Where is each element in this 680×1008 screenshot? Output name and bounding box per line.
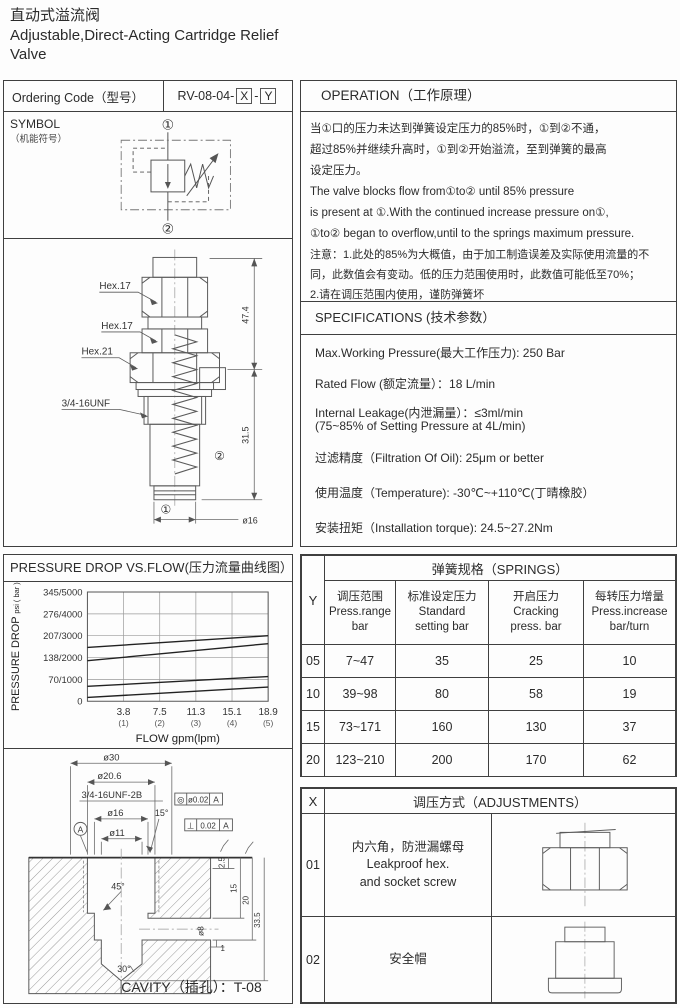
cell-cracking: 130 bbox=[489, 711, 584, 744]
cell-standard: 160 bbox=[396, 711, 489, 744]
valve-dimension-arrows bbox=[154, 258, 257, 522]
col-header-line: 调压范围 bbox=[325, 590, 395, 605]
svg-text:0: 0 bbox=[77, 696, 82, 707]
cavity-tolerance-frames: ◎ ø0.02 A ⊥ 0.02 A bbox=[175, 793, 233, 831]
pressure-flow-chart: 070/1000138/2000207/3000276/4000345/5000… bbox=[3, 581, 293, 749]
adjustments-table: X 调压方式（ADJUSTMENTS） 01 内六角，防泄漏螺母 Leakpro… bbox=[301, 788, 676, 1003]
symbol-label-zh: （机能符号） bbox=[10, 132, 67, 147]
svg-text:15.1: 15.1 bbox=[222, 707, 242, 718]
cell-standard: 80 bbox=[396, 678, 489, 711]
tolerance2-datum: A bbox=[223, 820, 229, 830]
svg-text:(5): (5) bbox=[263, 718, 274, 728]
desc-line: 安全帽 bbox=[325, 951, 491, 969]
svg-text:276/4000: 276/4000 bbox=[43, 608, 82, 619]
svg-text:(2): (2) bbox=[155, 718, 166, 728]
cell-cracking: 58 bbox=[489, 678, 584, 711]
desc-line: and socket screw bbox=[325, 874, 491, 892]
operation-line: 当①口的压力未达到弹簧设定压力的85%时，①到②不通， bbox=[310, 119, 667, 140]
cell-description: 内六角，防泄漏螺母 Leakproof hex. and socket scre… bbox=[325, 814, 492, 917]
ordering-code-label: Ordering Code（型号） bbox=[4, 81, 164, 111]
cell-x: 01 bbox=[302, 814, 325, 917]
cell-increase: 10 bbox=[584, 645, 676, 678]
cell-range: 73~171 bbox=[325, 711, 396, 744]
adjustments-corner-x: X bbox=[302, 789, 325, 814]
cavity-dia8-label: ø8 bbox=[196, 926, 206, 936]
ordering-code-x: X bbox=[236, 88, 252, 104]
cell-drawing bbox=[492, 917, 676, 1003]
valve-port2-label: ② bbox=[214, 449, 225, 463]
svg-text:70/1000: 70/1000 bbox=[48, 674, 82, 685]
springs-col-press-range: 调压范围 Press.range bar bbox=[325, 581, 396, 645]
cell-range: 7~47 bbox=[325, 645, 396, 678]
col-header-line: 标准设定压力 bbox=[396, 590, 488, 605]
tolerance2-symbol: ⊥ bbox=[187, 820, 194, 830]
ordering-code-value: RV-08-04-X-Y bbox=[164, 88, 292, 104]
cavity-dim335-label: 33.5 bbox=[253, 912, 262, 928]
svg-text:345/5000: 345/5000 bbox=[43, 586, 82, 597]
cavity-drawing: ø30 ø20.6 3/4-16UNF-2B ø16 ø11 15° 45° 3… bbox=[4, 749, 292, 1003]
tolerance2-value: 0.02 bbox=[200, 821, 216, 830]
spec-internal-leakage-note: (75~85% of Setting Pressure at 4L/min) bbox=[315, 419, 525, 433]
ordering-code-y: Y bbox=[260, 88, 276, 104]
col-header-line: Press.range bbox=[325, 605, 395, 620]
svg-text:(4): (4) bbox=[227, 718, 238, 728]
cell-y: 20 bbox=[302, 744, 325, 777]
operation-line: ①to② began to overflow,until to the spri… bbox=[310, 224, 667, 245]
operation-title: OPERATION（工作原理） bbox=[321, 88, 481, 103]
cell-standard: 200 bbox=[396, 744, 489, 777]
cell-increase: 37 bbox=[584, 711, 676, 744]
cell-y: 10 bbox=[302, 678, 325, 711]
col-header-line: Cracking bbox=[489, 605, 583, 620]
cavity-caption: CAVITY（插孔）：T-08 bbox=[94, 977, 289, 997]
spec-filtration: 过滤精度（Filtration Of Oil): 25μm or better bbox=[315, 449, 544, 466]
specifications-section-header: SPECIFICATIONS (技术参数） bbox=[300, 301, 677, 335]
col-header-line: Press.increase bbox=[584, 605, 675, 620]
cavity-dia11-label: ø11 bbox=[109, 827, 125, 838]
tolerance1-value: ø0.02 bbox=[188, 796, 209, 805]
springs-table-section: Y 弹簧规格（SPRINGS） 调压范围 Press.range bar 标准设… bbox=[300, 554, 677, 777]
adjustments-table-title: 调压方式（ADJUSTMENTS） bbox=[325, 789, 676, 814]
cell-y: 15 bbox=[302, 711, 325, 744]
thread-label: 3/4-16UNF bbox=[62, 398, 111, 409]
symbol-port2-label: ② bbox=[162, 221, 174, 237]
col-header-line: bar/turn bbox=[584, 620, 675, 635]
cavity-angle45-label: 45° bbox=[111, 881, 125, 891]
operation-section-header: OPERATION（工作原理） bbox=[300, 80, 677, 112]
svg-text:3.8: 3.8 bbox=[117, 707, 131, 718]
springs-row-05: 05 7~47 35 25 10 bbox=[302, 645, 676, 678]
springs-col-standard-setting: 标准设定压力 Standard setting bar bbox=[396, 581, 489, 645]
operation-note-line: 同，此数值会有变动。低的压力范围使用时，此数值可能低至70%； bbox=[310, 265, 667, 285]
specifications-title: SPECIFICATIONS (技术参数） bbox=[315, 310, 495, 325]
cavity-dim15-label: 15 bbox=[229, 883, 238, 892]
hex17-mid-label: Hex.17 bbox=[101, 321, 133, 332]
ordering-code-separator: - bbox=[254, 89, 258, 103]
svg-text:18.9: 18.9 bbox=[259, 707, 279, 718]
adjustments-table-section: X 调压方式（ADJUSTMENTS） 01 内六角，防泄漏螺母 Leakpro… bbox=[300, 787, 677, 1004]
svg-text:207/3000: 207/3000 bbox=[43, 630, 82, 641]
col-header-line: Standard bbox=[396, 605, 488, 620]
svg-text:138/2000: 138/2000 bbox=[43, 652, 82, 663]
operation-line: is present at ①.With the continued incre… bbox=[310, 203, 667, 224]
svg-text:PRESSURE DROP psi ( bar ): PRESSURE DROP psi ( bar ) bbox=[10, 582, 22, 711]
springs-row-20: 20 123~210 200 170 62 bbox=[302, 744, 676, 777]
symbol-label: SYMBOL （机能符号） bbox=[10, 117, 67, 147]
spec-installation-torque: 安装扭矩（Installation torque): 24.5~27.2Nm bbox=[315, 519, 553, 536]
tolerance1-datum: A bbox=[213, 795, 219, 805]
cell-range: 123~210 bbox=[325, 744, 396, 777]
springs-row-15: 15 73~171 160 130 37 bbox=[302, 711, 676, 744]
cavity-dia16-label: ø16 bbox=[107, 807, 123, 818]
pressure-flow-plot: 070/1000138/2000207/3000276/4000345/5000… bbox=[4, 582, 292, 748]
springs-row-10: 10 39~98 80 58 19 bbox=[302, 678, 676, 711]
chart-series-spring-05 bbox=[87, 687, 268, 697]
springs-corner-y: Y bbox=[302, 556, 325, 645]
hex21-label: Hex.21 bbox=[81, 347, 113, 358]
col-header-line: press. bar bbox=[489, 620, 583, 635]
safety-cap-drawing bbox=[494, 918, 674, 1002]
springs-col-cracking: 开启压力 Cracking press. bar bbox=[489, 581, 584, 645]
operation-text: 当①口的压力未达到弹簧设定压力的85%时，①到②不通， 超过85%并继续升高时，… bbox=[300, 111, 677, 302]
svg-text:FLOW gpm(lpm): FLOW gpm(lpm) bbox=[136, 733, 220, 745]
cavity-thread-label: 3/4-16UNF-2B bbox=[81, 789, 142, 800]
operation-line: The valve blocks flow from①to② until 85%… bbox=[310, 182, 667, 203]
operation-line: 超过85%并继续升高时，①到②开始溢流，至到弹簧的最高 bbox=[310, 140, 667, 161]
valve-section-drawing: 47.4 31.5 ø16 ① ② Hex.17 Hex.17 Hex.21 3… bbox=[4, 239, 292, 546]
chart-series-spring-10 bbox=[87, 677, 268, 687]
col-header-line: setting bar bbox=[396, 620, 488, 635]
cavity-section: ø30 ø20.6 3/4-16UNF-2B ø16 ø11 15° 45° 3… bbox=[3, 748, 293, 1004]
cavity-angle30-label: 30° bbox=[117, 964, 131, 974]
cell-description: 安全帽 bbox=[325, 917, 492, 1003]
chart-title: PRESSURE DROP VS.FLOW(压力流量曲线图） bbox=[10, 560, 293, 575]
spec-rated-flow: Rated Flow (额定流量）：18 L/min bbox=[315, 375, 495, 392]
cavity-angle15-label: 15° bbox=[155, 808, 169, 818]
cell-x: 02 bbox=[302, 917, 325, 1003]
symbol-section: SYMBOL （机能符号） ① ② bbox=[3, 111, 293, 239]
leakproof-hex-nut-drawing bbox=[494, 817, 674, 913]
cavity-dim20-label: 20 bbox=[241, 895, 250, 904]
cell-increase: 19 bbox=[584, 678, 676, 711]
datasheet-page: 直动式溢流阀 Adjustable,Direct-Acting Cartridg… bbox=[0, 0, 680, 1008]
operation-line: 设定压力。 bbox=[310, 161, 667, 182]
page-title-en-line1: Adjustable,Direct-Acting Cartridge Relie… bbox=[10, 26, 278, 45]
cell-increase: 62 bbox=[584, 744, 676, 777]
tolerance1-symbol: ◎ bbox=[177, 795, 184, 805]
symbol-label-en: SYMBOL bbox=[10, 117, 67, 132]
cavity-dia206-label: ø20.6 bbox=[97, 770, 121, 781]
cavity-dim1-label: 1 bbox=[220, 944, 225, 953]
svg-text:7.5: 7.5 bbox=[153, 707, 167, 718]
cell-drawing bbox=[492, 814, 676, 917]
spec-temperature: 使用温度（Temperature): -30℃~+110℃(丁晴橡胶） bbox=[315, 484, 594, 501]
valve-drawing-section: 47.4 31.5 ø16 ① ② Hex.17 Hex.17 Hex.21 3… bbox=[3, 238, 293, 547]
cell-standard: 35 bbox=[396, 645, 489, 678]
cavity-datum-label: A bbox=[78, 824, 84, 834]
adjustments-row-02: 02 安全帽 bbox=[302, 917, 676, 1003]
cell-cracking: 170 bbox=[489, 744, 584, 777]
cavity-dim25-label: 2.5 bbox=[217, 856, 226, 868]
cavity-dia30-label: ø30 bbox=[103, 751, 119, 762]
col-header-line: 每转压力增量 bbox=[584, 590, 675, 605]
desc-line: 内六角，防泄漏螺母 bbox=[325, 839, 491, 857]
springs-table: Y 弹簧规格（SPRINGS） 调压范围 Press.range bar 标准设… bbox=[301, 555, 676, 777]
hex17-top-label: Hex.17 bbox=[99, 281, 131, 292]
valve-dim-upper: 47.4 bbox=[240, 306, 250, 323]
chart-section-header: PRESSURE DROP VS.FLOW(压力流量曲线图） bbox=[3, 554, 293, 582]
svg-text:(3): (3) bbox=[191, 718, 202, 728]
spec-max-pressure: Max.Working Pressure(最大工作压力): 250 Bar bbox=[315, 344, 565, 361]
svg-text:11.3: 11.3 bbox=[187, 707, 206, 718]
operation-note-line: 注意：1.此处的85%为大概值，由于加工制造误差及实际使用流量的不 bbox=[310, 245, 667, 265]
cell-range: 39~98 bbox=[325, 678, 396, 711]
symbol-port1-label: ① bbox=[162, 116, 174, 132]
specifications-list: Max.Working Pressure(最大工作压力): 250 Bar Ra… bbox=[300, 334, 677, 547]
valve-part-labels: Hex.17 Hex.17 Hex.21 3/4-16UNF bbox=[62, 281, 134, 409]
springs-table-title: 弹簧规格（SPRINGS） bbox=[325, 556, 676, 581]
ordering-code-prefix: RV-08-04- bbox=[178, 89, 235, 103]
col-header-line: bar bbox=[325, 620, 395, 635]
valve-dia-tip: ø16 bbox=[242, 516, 257, 526]
page-title-zh: 直动式溢流阀 bbox=[10, 6, 278, 26]
svg-text:(1): (1) bbox=[118, 718, 129, 728]
cell-y: 05 bbox=[302, 645, 325, 678]
ordering-code-section: Ordering Code（型号） RV-08-04-X-Y bbox=[3, 80, 293, 112]
springs-col-increase: 每转压力增量 Press.increase bar/turn bbox=[584, 581, 676, 645]
valve-port1-label: ① bbox=[161, 503, 172, 517]
valve-dim-lower: 31.5 bbox=[240, 426, 250, 443]
adjustments-row-01: 01 内六角，防泄漏螺母 Leakproof hex. and socket s… bbox=[302, 814, 676, 917]
cell-cracking: 25 bbox=[489, 645, 584, 678]
desc-line: Leakproof hex. bbox=[325, 856, 491, 874]
title-block: 直动式溢流阀 Adjustable,Direct-Acting Cartridg… bbox=[10, 6, 278, 64]
page-title-en-line2: Valve bbox=[10, 45, 278, 64]
col-header-line: 开启压力 bbox=[489, 590, 583, 605]
